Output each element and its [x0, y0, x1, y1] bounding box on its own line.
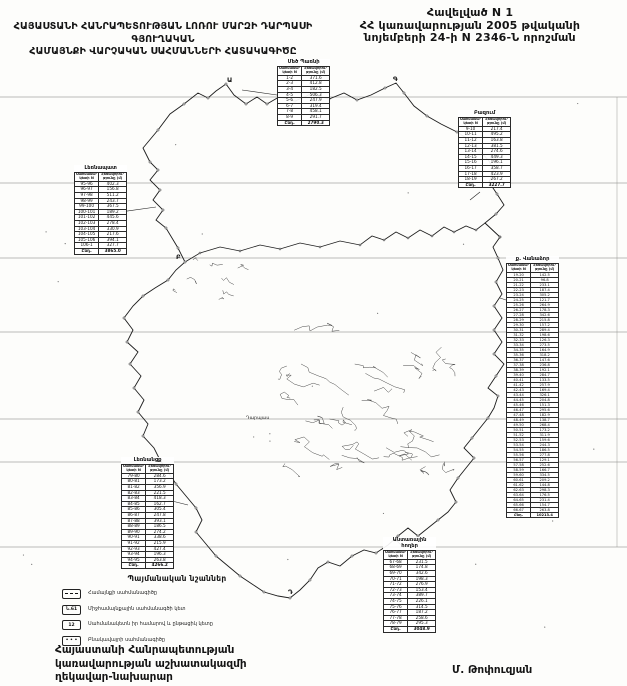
signature-name: Մ. Թոփուզյան — [452, 664, 532, 676]
coord-table-forest-lands: Անտառային հողերՍահմանա- կետի NՀեռավորու-… — [383, 537, 436, 633]
column-header: Հեռավորու- թյունը (մ) — [483, 118, 511, 127]
table-cell: 2790.3 — [302, 120, 330, 126]
legend-symbol-text-icon: 12 — [62, 620, 81, 630]
column-header: Սահմանա- կետի N — [507, 264, 531, 273]
page-title: ՀԱՅԱՍՏԱՆԻ ՀԱՆՐԱՊԵՏՈՒԹՅԱՆ ԼՈՌՈՒ ՄԱՐԶԻ ԴԱՐ… — [0, 21, 326, 59]
legend-item: 12Սահմանակետն իր համարով և ընթացիկ կետը — [62, 620, 292, 630]
table-cell: Ընդ. — [75, 248, 99, 254]
legend-symbol-text-icon: Ն.61 — [62, 605, 81, 615]
legend-symbol-dash-icon — [62, 589, 81, 599]
table-total-row: Ընդ.3865.0 — [75, 248, 127, 254]
column-header: Սահմանա- կետի N — [75, 173, 99, 182]
coord-table-title: Բազում — [458, 110, 511, 116]
column-header: Սահմանա- կետի N — [459, 118, 483, 127]
table-cell: 3048.9 — [408, 626, 436, 632]
coord-table: Սահմանա- կետի NՀեռավորու- թյունը (մ)67-6… — [383, 550, 436, 633]
legend-item-label: Սահմանակետն իր համարով և ընթացիկ կետը — [88, 622, 213, 628]
coord-table: Սահմանա- կետի NՀեռավորու- թյունը (մ)19-2… — [506, 263, 559, 518]
table-cell: 10213.4 — [531, 512, 559, 517]
coord-table: Սահմանա- կետի NՀեռավորու- թյունը (մ)9-10… — [458, 117, 511, 188]
table-total-row: Ընդ.4266.2 — [122, 563, 174, 569]
column-header: Հեռավորու- թյունը (մ) — [531, 264, 559, 273]
coord-table: Սահմանա- կետի NՀեռավորու- թյունը (մ)95-9… — [74, 172, 127, 255]
junction-letter-a: Ա — [227, 76, 232, 84]
column-header: Հեռավորու- թյունը (մ) — [99, 173, 127, 182]
table-cell: Ընդ. — [278, 120, 302, 126]
junction-letter-b: Բ — [176, 253, 181, 261]
junction-letter-g: Գ — [393, 75, 398, 83]
table-cell: Ընդ. — [122, 563, 146, 569]
signatory-title-block: Հայաստանի Հանրապետության կառավարության ա… — [55, 644, 247, 685]
page-title-line1: ՀԱՅԱՍՏԱՆԻ ՀԱՆՐԱՊԵՏՈՒԹՅԱՆ ԼՈՌՈՒ ՄԱՐԶԻ ԴԱՐ… — [0, 21, 326, 46]
legend-item: Համայնքի սահմանագիծը — [62, 589, 292, 599]
table-cell: 4266.2 — [146, 563, 174, 569]
legend-item: Ն.61Միջհամայնքային սահմանագծի կետ — [62, 605, 292, 615]
column-header: Հեռավորու- թյունը (մ) — [408, 551, 436, 560]
column-header: Սահմանա- կետի N — [122, 465, 146, 474]
column-header: Հեռավորու- թյունը (մ) — [146, 465, 174, 474]
table-cell: 3865.0 — [99, 248, 127, 254]
legend-title: Պայմանական նշաններ — [62, 574, 292, 583]
coord-table-title: Լեռնապատ — [74, 165, 127, 171]
appendix-number: Հավելված N 1 — [318, 7, 622, 20]
column-header: Սահմանա- կետի N — [384, 551, 408, 560]
column-header: Հեռավորու- թյունը (մ) — [302, 67, 330, 76]
coord-table-lernantsk: ԼեռնանցքՍահմանա- կետի NՀեռավորու- թյունը… — [121, 457, 174, 569]
column-header: Սահմանա- կետի N — [278, 67, 302, 76]
coord-table: Սահմանա- կետի NՀեռավորու- թյունը (մ)79-8… — [121, 464, 174, 569]
table-cell: 3227.7 — [483, 182, 511, 188]
legend-item-label: Համայնքի սահմանագիծը — [88, 591, 157, 597]
table-total-row: Ընդ.3048.9 — [384, 626, 436, 632]
coord-table-vanadzor: ք. ՎանաձորՍահմանա- կետի NՀեռավորու- թյու… — [506, 256, 559, 518]
table-cell: Ընդ. — [384, 626, 408, 632]
appendix-block: Հավելված N 1 ՀՀ կառավարության 2005 թվակա… — [318, 7, 622, 45]
coord-table-title: Անտառային հողեր — [383, 537, 436, 549]
document-page: Հավելված N 1 ՀՀ կառավարության 2005 թվակա… — [0, 0, 627, 686]
appendix-decree-line2: նոյեմբերի 24-ի N 2346-Ն որոշման — [318, 32, 622, 45]
signatory-line1: Հայաստանի Հանրապետության — [55, 644, 247, 658]
coord-table-title: ք. Վանաձոր — [506, 256, 559, 262]
coord-table: Սահմանա- կետի NՀեռավորու- թյունը (մ)1-23… — [277, 66, 330, 126]
table-total-row: Ընդ.10213.4 — [507, 512, 559, 517]
page-title-line2: ՀԱՄԱՅՆՔԻ ՎԱՐՉԱԿԱՆ ՍԱՀՄԱՆՆԵՐԻ ՀԱՏԱԿԱԳԻԾԸ — [0, 46, 326, 59]
coord-table-mets-parni: Մեծ ՊառնիՍահմանա- կետի NՀեռավորու- թյուն… — [277, 59, 330, 126]
table-cell: Ընդ. — [459, 182, 483, 188]
signatory-line3: ղեկավար-նախարար — [55, 671, 247, 685]
coord-table-lernapat: ԼեռնապատՍահմանա- կետի NՀեռավորու- թյունը… — [74, 165, 127, 255]
legend-item-label: Բնակավայրի սահմանագիծը — [88, 638, 165, 644]
table-cell: Ընդ. — [507, 512, 531, 517]
coord-table-title: Մեծ Պառնի — [277, 59, 330, 65]
table-total-row: Ընդ.3227.7 — [459, 182, 511, 188]
settlement-label: Դարպաս — [246, 416, 269, 421]
coord-table-title: Լեռնանցք — [121, 457, 174, 463]
table-total-row: Ընդ.2790.3 — [278, 120, 330, 126]
map-legend: Պայմանական նշաններ Համայնքի սահմանագիծըՆ… — [62, 574, 292, 651]
legend-item-label: Միջհամայնքային սահմանագծի կետ — [88, 607, 186, 613]
signatory-line2: կառավարության աշխատակազմի — [55, 658, 247, 672]
coord-table-bazum: ԲազումՍահմանա- կետի NՀեռավորու- թյունը (… — [458, 110, 511, 188]
